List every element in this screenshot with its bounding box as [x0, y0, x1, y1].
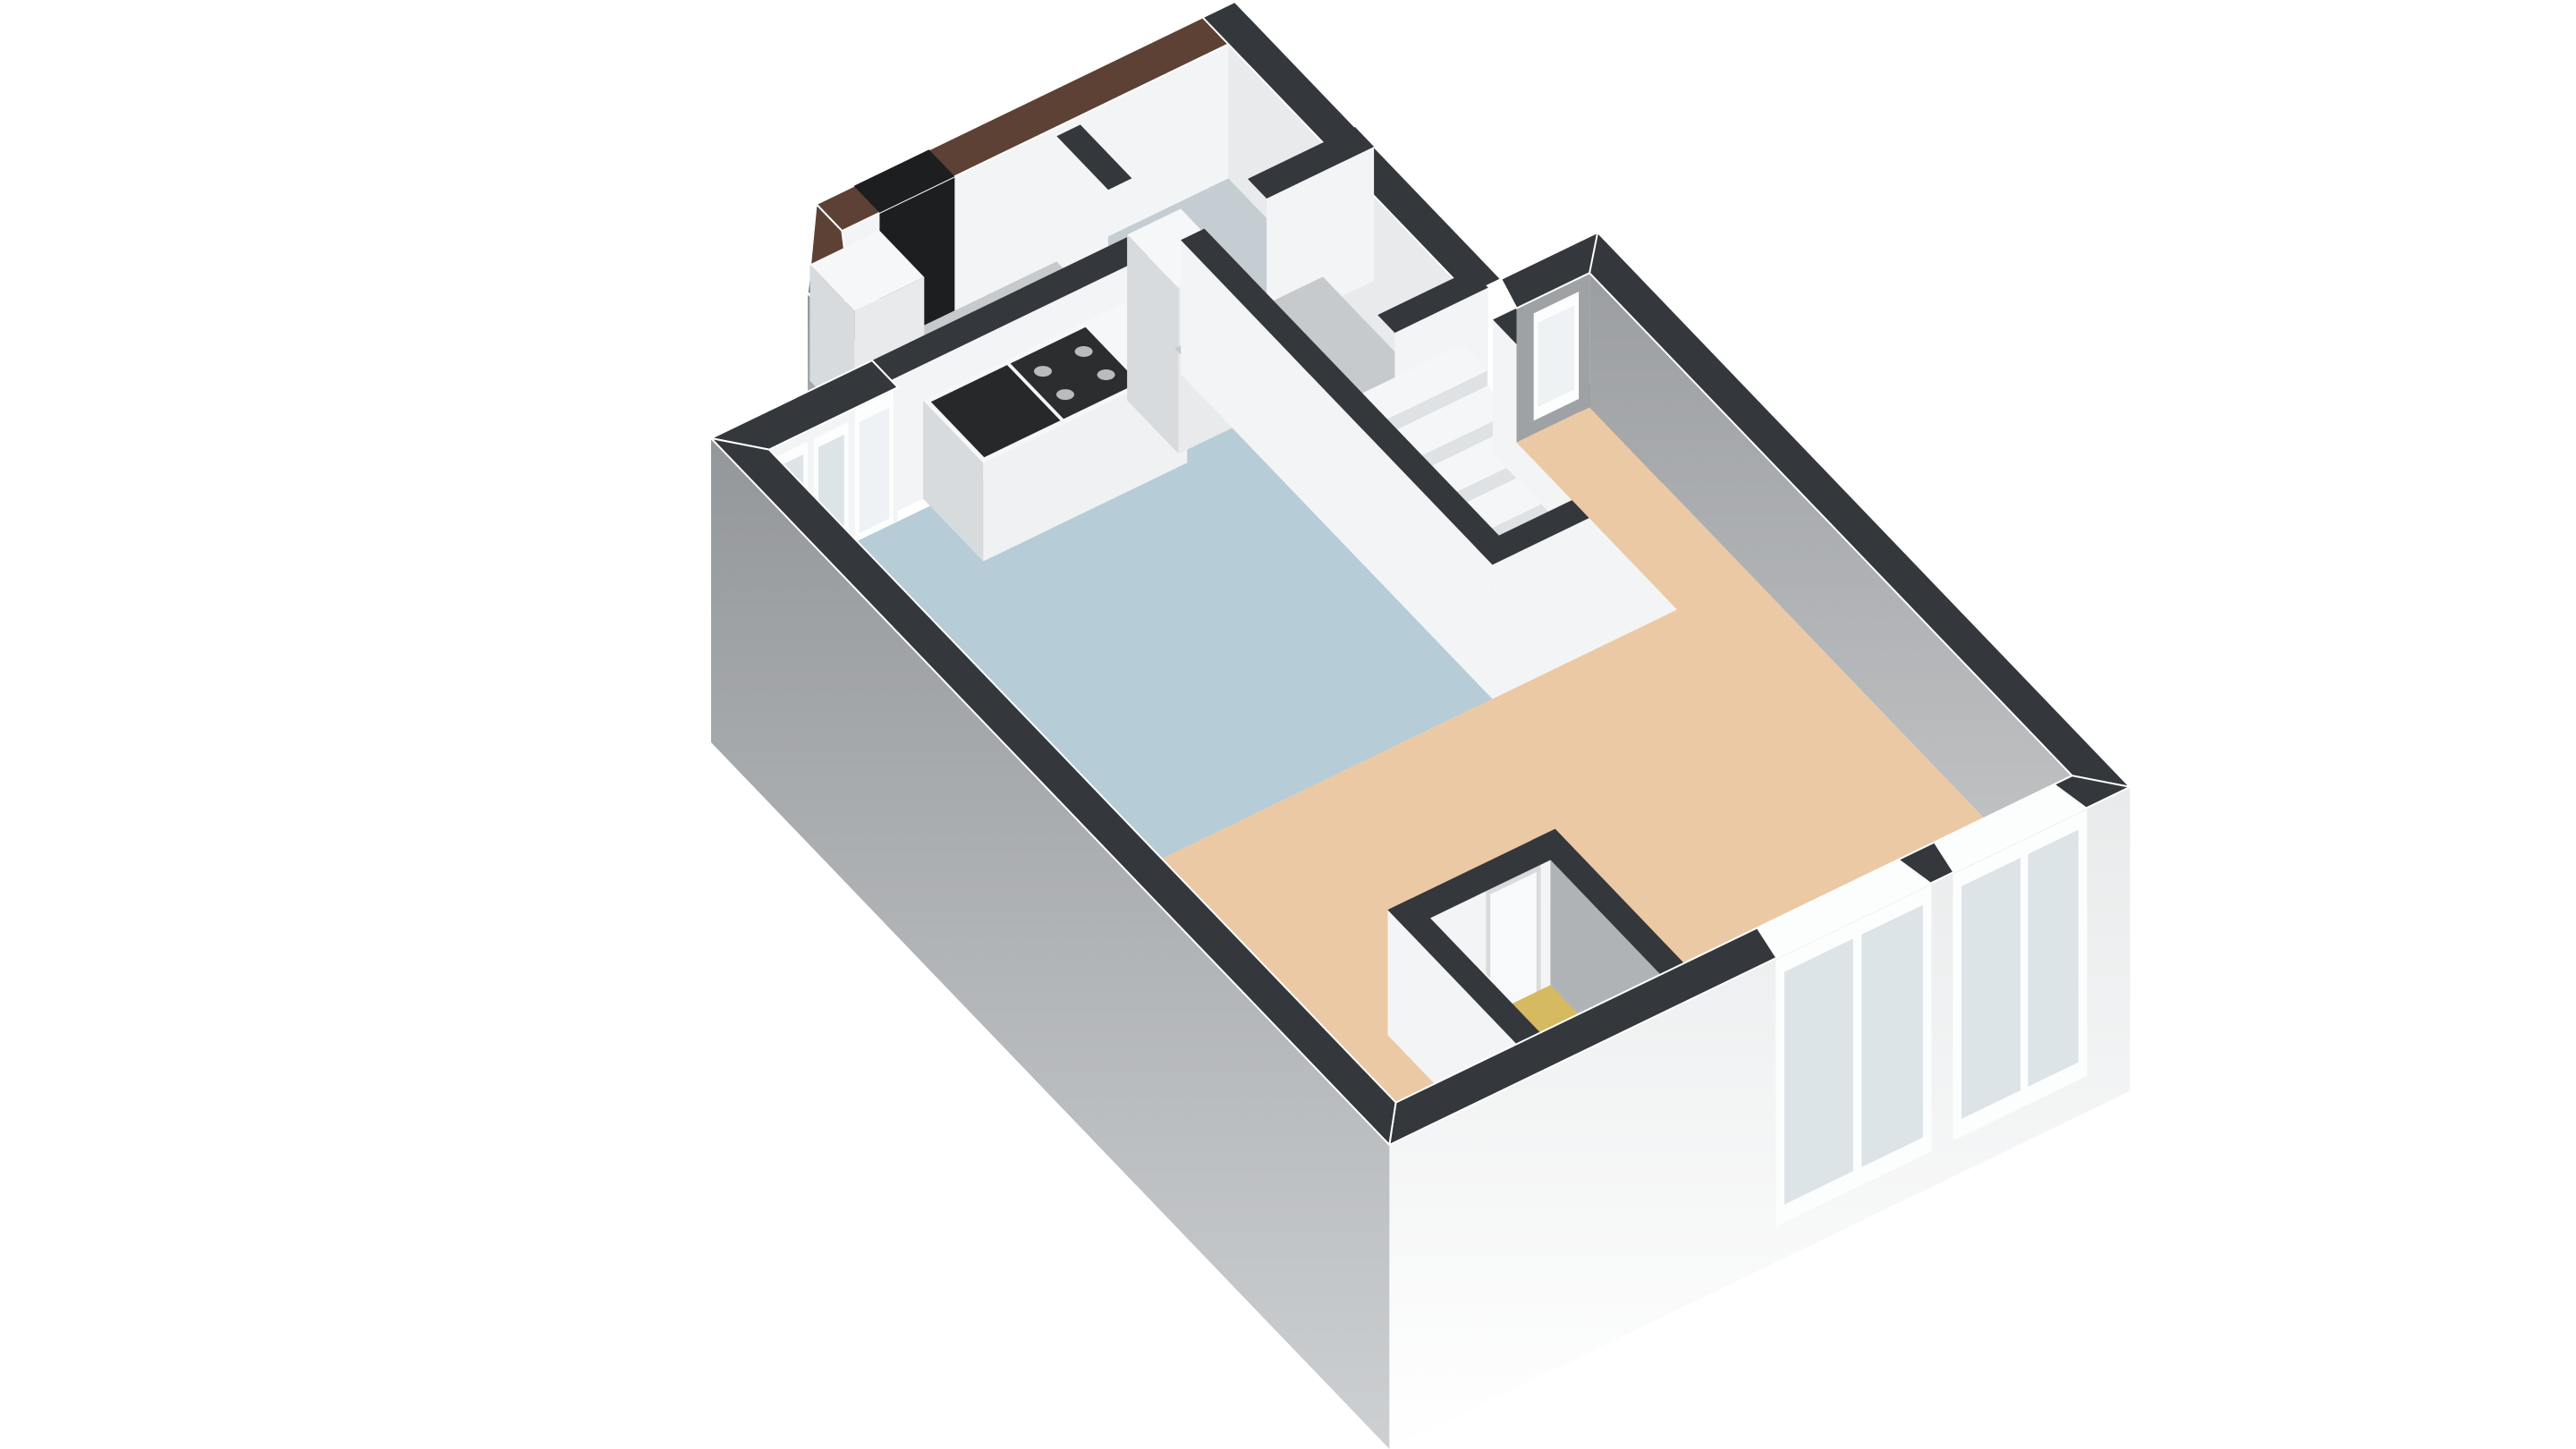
kitchen-door-glass	[860, 408, 890, 533]
burner-2	[1075, 346, 1093, 357]
se-window-2-glass-a	[1962, 858, 2021, 1119]
burner-4	[1097, 369, 1115, 380]
se-window-1-glass-a	[1784, 938, 1853, 1204]
se-window-2-glass-b	[2028, 830, 2078, 1087]
burner-1	[1034, 366, 1052, 377]
se-window-1-glass-b	[1861, 905, 1922, 1167]
floorplan-page	[0, 0, 2576, 1449]
floorplan-3d-render	[0, 0, 2576, 1449]
burner-3	[1056, 389, 1074, 400]
living-ne-window-glass	[1538, 305, 1575, 407]
